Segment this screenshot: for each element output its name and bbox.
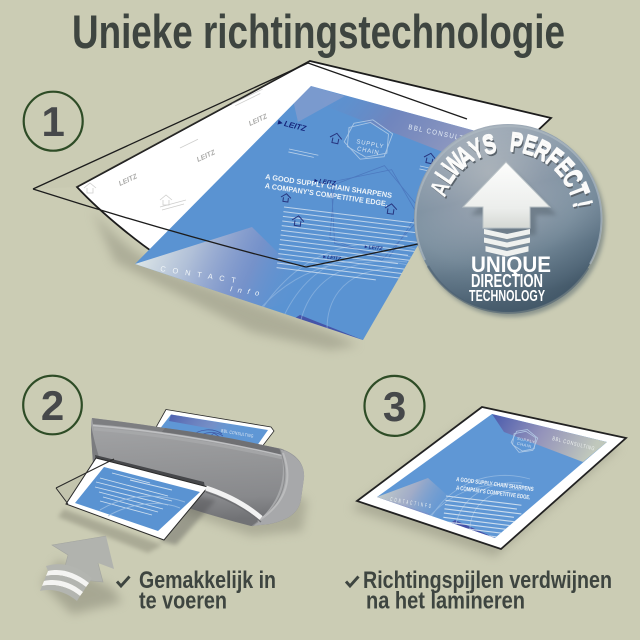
svg-text:Unieke richtingstechnologie: Unieke richtingstechnologie [72, 5, 565, 58]
svg-text:TECHNOLOGY: TECHNOLOGY [469, 288, 545, 305]
svg-text:3: 3 [383, 383, 406, 430]
svg-text:1: 1 [42, 98, 65, 145]
svg-text:2: 2 [41, 382, 64, 429]
svg-text:na het lamineren: na het lamineren [366, 588, 525, 615]
svg-text:te voeren: te voeren [139, 588, 227, 615]
